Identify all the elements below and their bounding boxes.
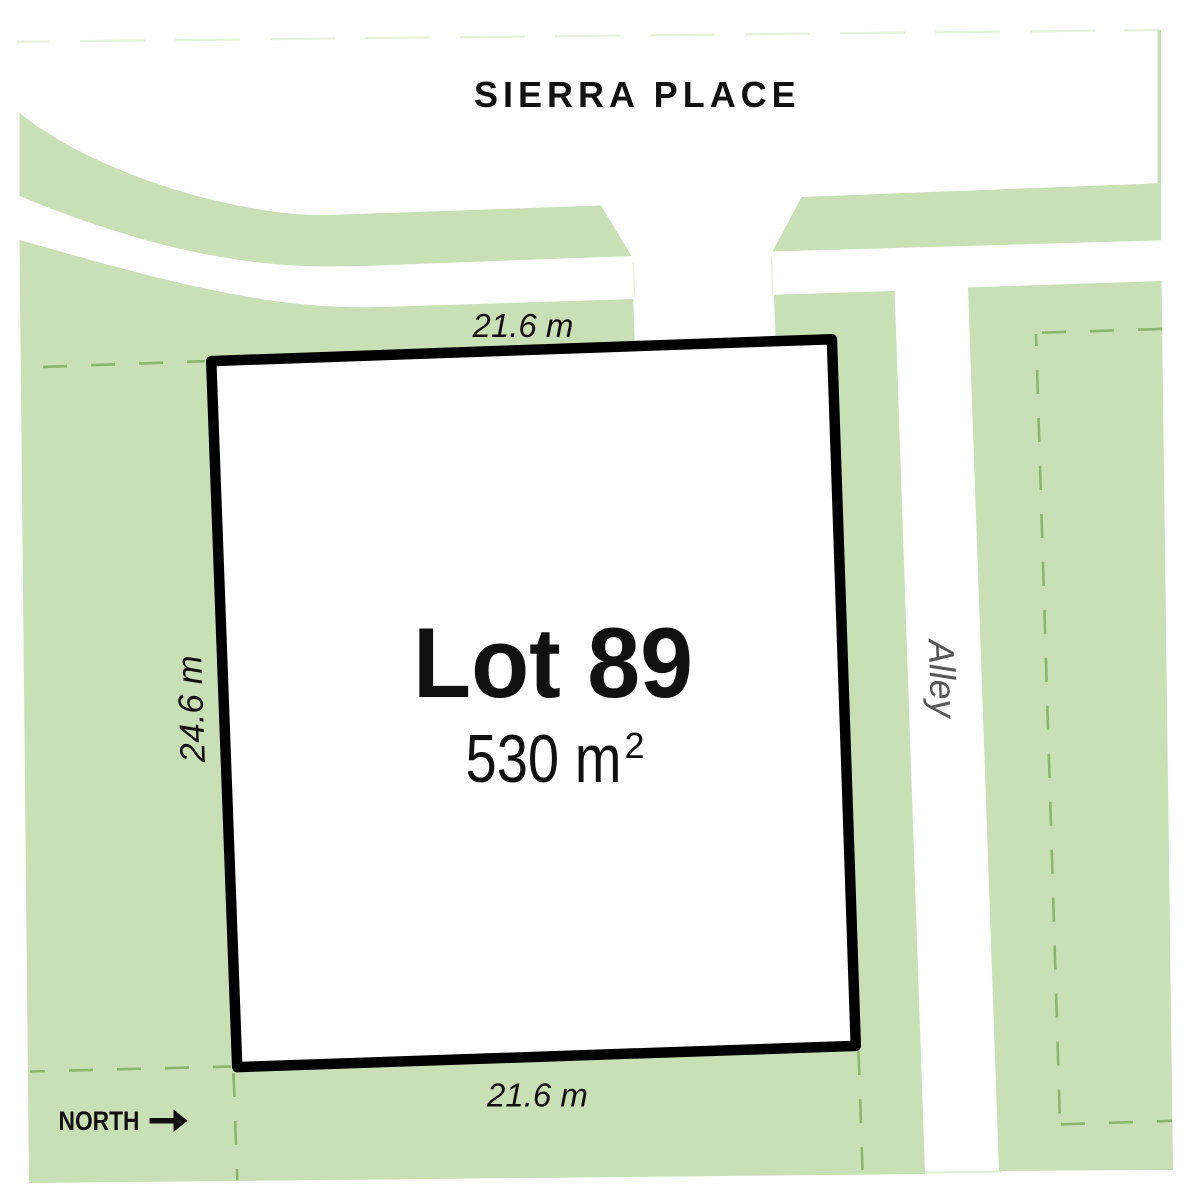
svg-text:NORTH: NORTH [59, 1106, 140, 1136]
svg-text:24.6 m: 24.6 m [170, 655, 213, 764]
svg-text:Alley: Alley [921, 637, 965, 720]
svg-text:Lot 89: Lot 89 [413, 607, 693, 718]
svg-text:530 m: 530 m [466, 721, 622, 797]
svg-text:2: 2 [625, 725, 645, 766]
svg-text:21.6 m: 21.6 m [486, 1077, 588, 1114]
svg-text:SIERRA PLACE: SIERRA PLACE [474, 74, 801, 115]
svg-text:21.6 m: 21.6 m [472, 307, 574, 344]
